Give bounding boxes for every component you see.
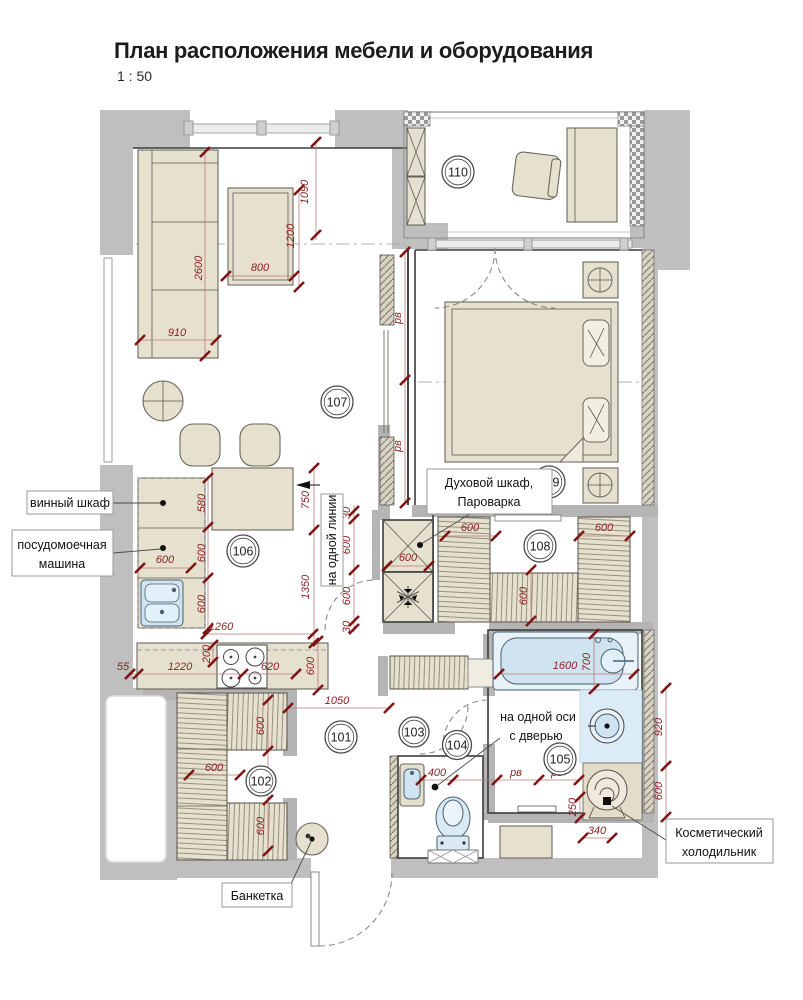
curtain-swing [435,248,495,308]
dim-label: 700 [581,652,593,671]
fridge-column [383,572,433,622]
entry-door-leaf [311,872,319,946]
same-line-label: на одной линии [325,495,339,586]
door-mat [428,850,478,863]
room-badge-108: 108 [524,530,556,562]
dim-label: 580 [196,493,208,512]
wc-sink [400,764,424,806]
bench-label: Банкетка [231,889,284,903]
dim-label: 910 [168,327,187,339]
svg-text:101: 101 [331,731,352,745]
dim-label: 600 [518,586,530,605]
dim-label: 600 [305,656,317,675]
oven-steamer-label: Духовой шкаф, [445,476,533,490]
floor-plan-drawing: 1090 1200 800 2600 910 580 600 600 600 7… [0,0,803,1000]
dim-label: 600 [461,522,480,534]
room-badge-104: 104 [443,731,472,760]
dim-label: рв [392,312,404,325]
wine-cabinet-label: винный шкаф [30,496,110,510]
external-ledge [106,696,166,862]
curtain-swing [495,248,555,308]
dim-label: 250 [567,797,579,817]
dim-label: 600 [156,554,175,566]
dishwasher-label: машина [39,557,85,571]
dim-label: 1350 [300,574,312,599]
dim-label: 1600 [553,660,578,672]
dim-label: 1260 [209,621,234,633]
dining-table-round [143,381,183,421]
shelf [518,806,556,812]
svg-text:105: 105 [550,753,571,767]
same-axis-label: на одной оси [500,710,576,724]
chair [180,424,220,466]
room-badge-106: 106 [227,535,259,567]
room-badge-105: 105 [544,743,576,775]
cosmetic-fridge-label: холодильник [682,845,757,859]
dim-label: 920 [653,717,665,736]
svg-text:110: 110 [448,166,468,180]
dim-label: 600 [205,762,224,774]
balcony-armchair [511,151,561,200]
dim-label: 600 [255,816,267,835]
dim-label: 600 [196,543,208,562]
chair [240,424,280,466]
svg-text:104: 104 [447,739,468,753]
dim-label: рв [509,767,522,779]
bed [445,302,618,462]
dim-label: 620 [261,661,280,673]
alignment-arrow [296,481,310,489]
external-unit [500,826,552,858]
floor-plan-page: План расположения мебели и оборудования … [0,0,803,1000]
kitchen-sink [141,580,183,626]
dim-label: 200 [201,644,213,664]
dim-label: 1050 [325,695,350,707]
toilet [436,797,470,850]
dim-label: 600 [255,716,267,735]
nightstand [583,262,618,298]
dim-label: 600 [399,552,418,564]
balcony-sideboard [567,128,617,222]
dim-label: 800 [251,262,270,274]
dim-label: рв [392,440,404,453]
tv-console [380,255,394,505]
nightstand [583,468,618,503]
pillow [583,398,609,442]
dim-label: 55 [117,661,130,673]
same-axis-label: с дверью [509,729,562,743]
dim-label: 1220 [168,661,193,673]
dim-label: 1090 [299,179,311,204]
svg-text:103: 103 [404,726,425,740]
hall-wardrobe [390,656,468,689]
room-badge-102: 102 [246,766,276,796]
dim-label: 2600 [193,255,205,281]
hall-cabinet [468,659,496,687]
svg-text:102: 102 [251,775,272,789]
room-badge-103: 103 [399,717,429,747]
dishwasher-label: посудомоечная [17,538,106,552]
dim-label: 750 [300,490,312,509]
dim-label: 600 [653,781,665,800]
dim-label: 400 [428,767,447,779]
room-badge-110: 110 [442,156,474,188]
dim-label: 600 [595,522,614,534]
room-badge-107: 107 [321,386,353,418]
cosmetic-fridge-label: Косметический [675,826,762,840]
oven-steamer-label: Пароварка [458,495,521,509]
cooktop [217,645,267,688]
dim-label: 600 [341,586,353,605]
washing-machine [583,763,642,820]
svg-text:107: 107 [327,396,348,410]
balcony-cabinet-column [407,128,425,225]
dim-label: 600 [196,594,208,613]
dim-label: 30 [341,620,353,633]
svg-text:106: 106 [233,545,254,559]
kitchen-island [212,468,293,530]
room-badge-101: 101 [325,721,357,753]
dim-label: 1200 [285,223,297,248]
dim-label: 340 [588,825,607,837]
svg-text:108: 108 [530,540,551,554]
